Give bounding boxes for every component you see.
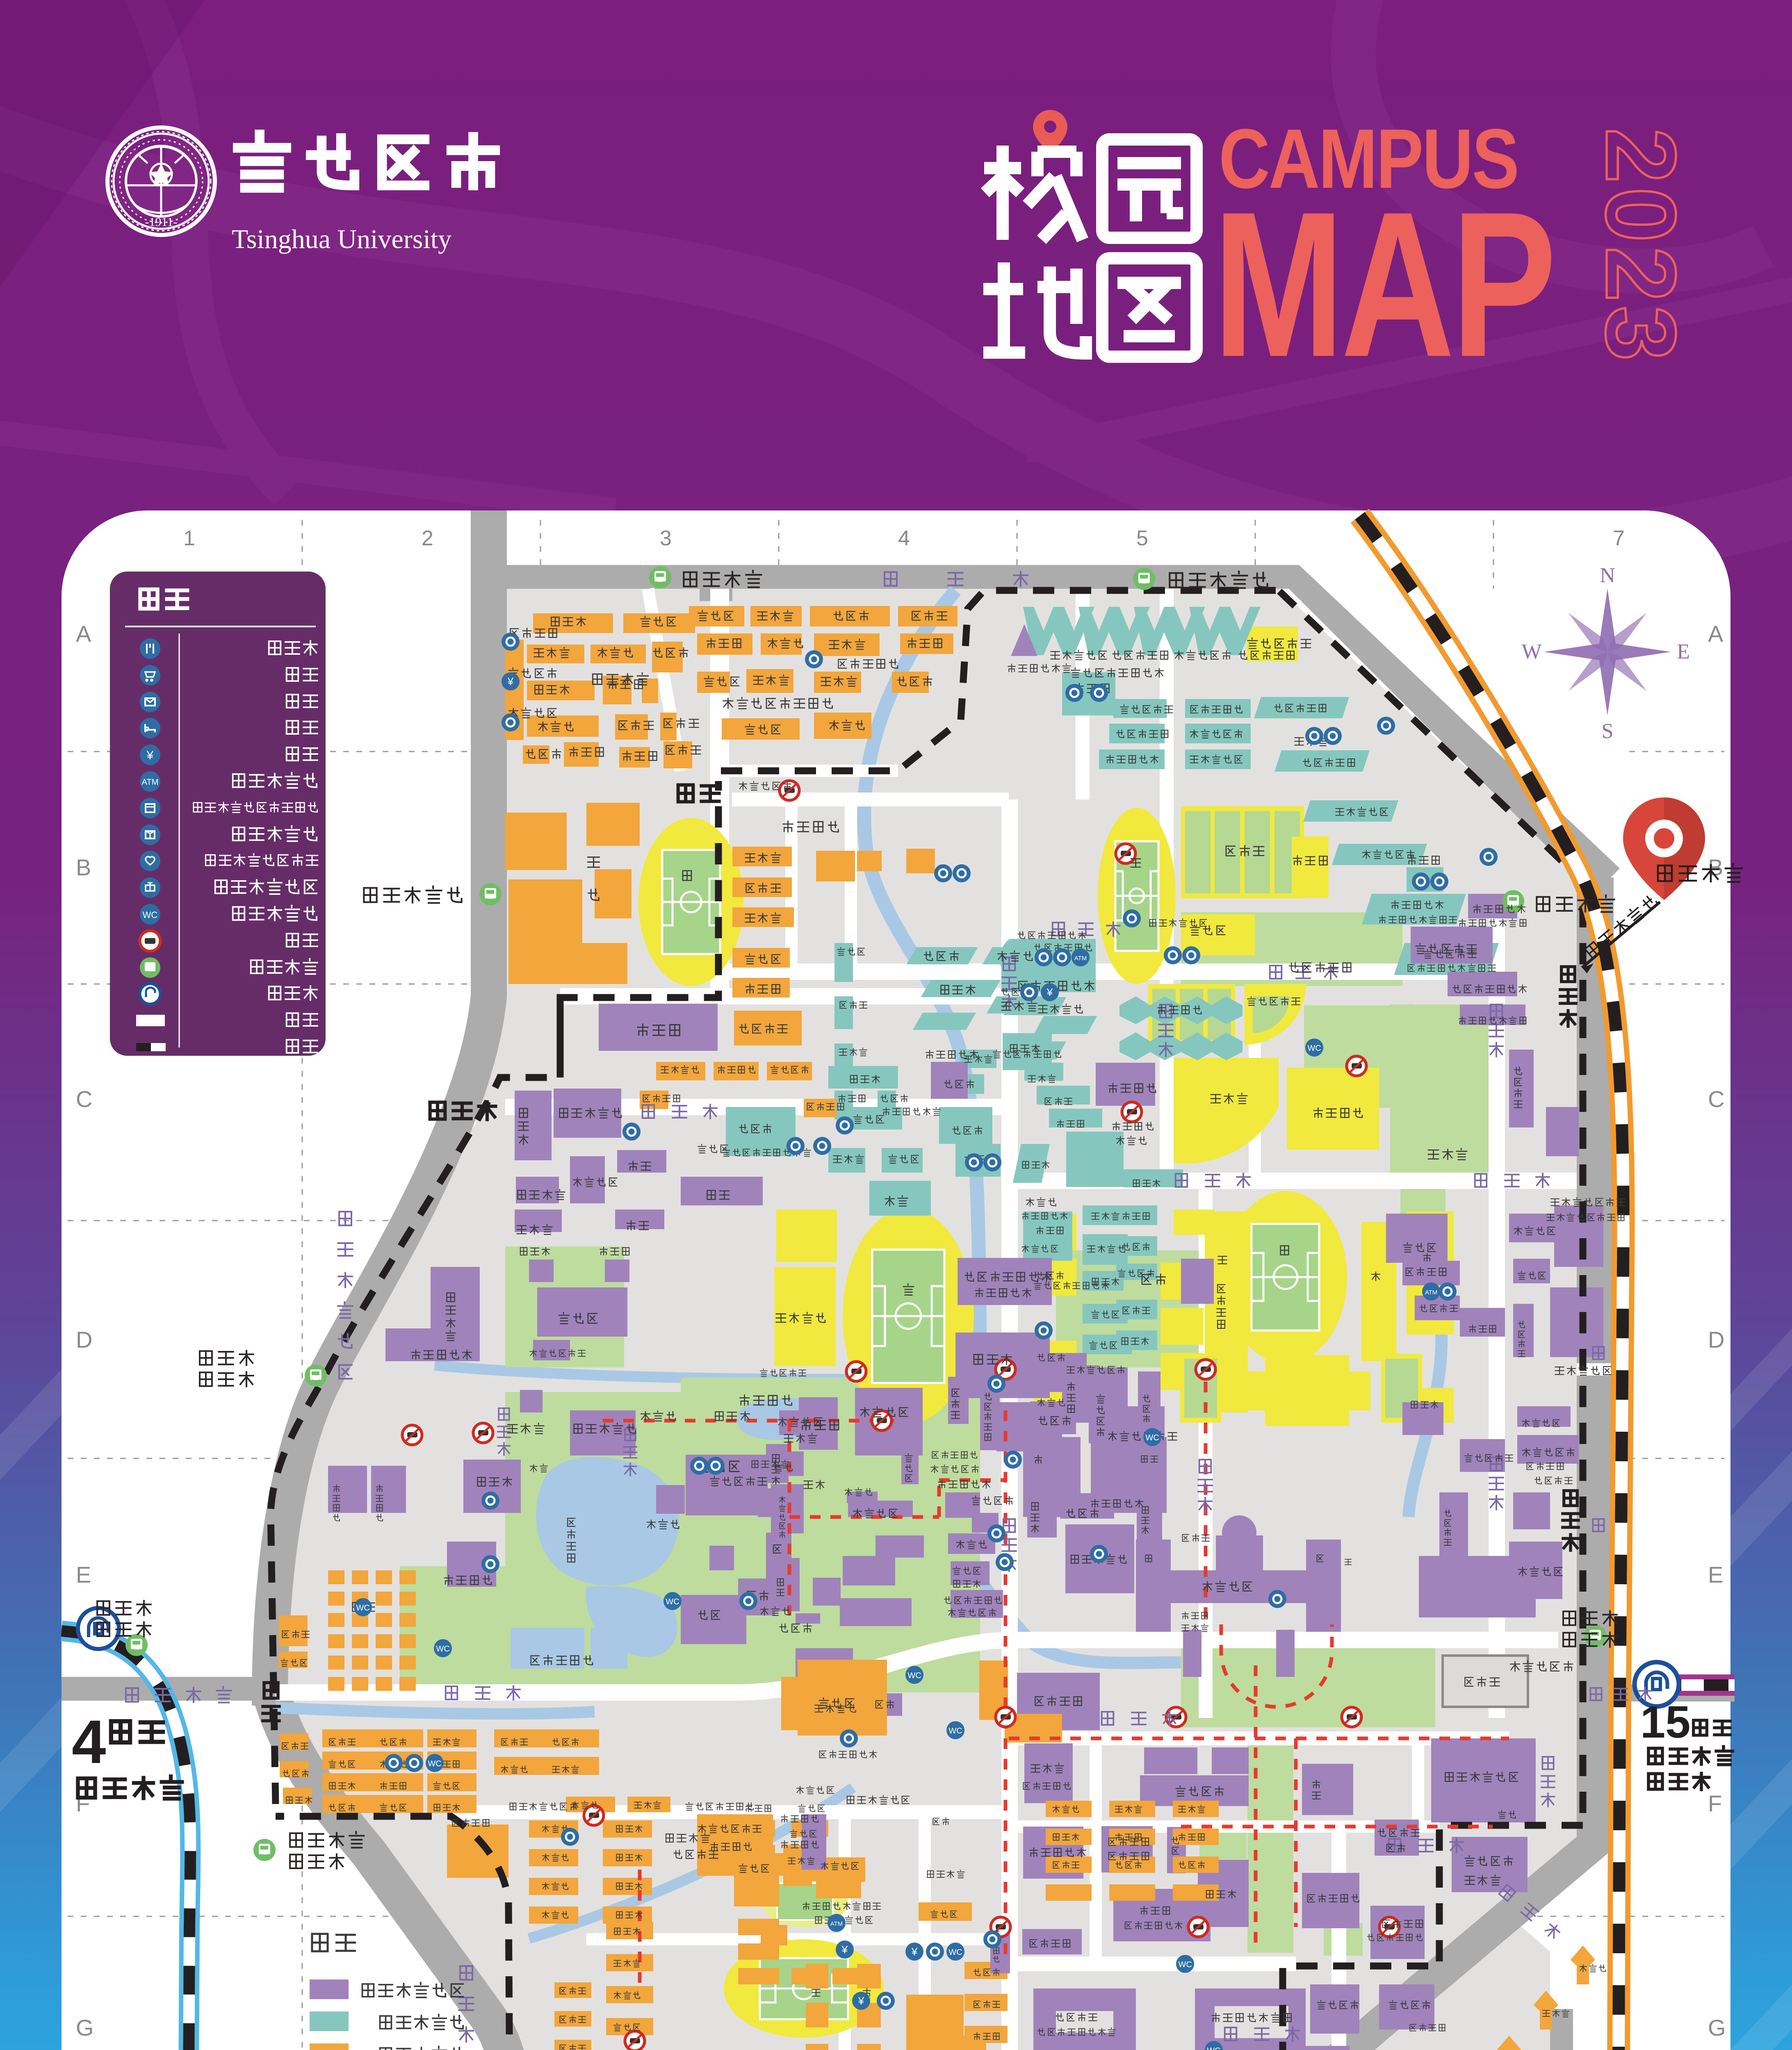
svg-text:ATM: ATM xyxy=(142,778,159,787)
svg-text:G: G xyxy=(76,2015,94,2041)
svg-text:N: N xyxy=(1600,564,1615,587)
svg-text:E: E xyxy=(1677,640,1690,663)
svg-text:WC: WC xyxy=(907,1671,921,1680)
svg-text:C: C xyxy=(76,1086,92,1112)
svg-text:1: 1 xyxy=(183,526,195,550)
svg-text:W: W xyxy=(1521,640,1541,663)
svg-text:¥: ¥ xyxy=(841,1943,848,1956)
svg-text:WC: WC xyxy=(428,1759,441,1768)
svg-text:B: B xyxy=(76,854,91,880)
svg-text:2: 2 xyxy=(422,526,433,550)
svg-text:WC: WC xyxy=(1145,1433,1159,1442)
svg-text:WC: WC xyxy=(666,1597,679,1606)
svg-text:¥: ¥ xyxy=(507,675,514,688)
svg-text:¥: ¥ xyxy=(858,1995,864,2007)
svg-text:¥: ¥ xyxy=(146,749,154,762)
svg-text:WC: WC xyxy=(436,1645,449,1654)
svg-text:¥: ¥ xyxy=(1046,986,1053,998)
svg-text:G: G xyxy=(1708,2015,1726,2041)
svg-text:D: D xyxy=(76,1327,92,1353)
svg-text:WC: WC xyxy=(948,1948,962,1957)
svg-text:F: F xyxy=(1708,1790,1722,1816)
svg-text:WC: WC xyxy=(1207,2046,1220,2050)
svg-text:3: 3 xyxy=(660,526,672,550)
svg-text:WC: WC xyxy=(143,910,158,920)
svg-text:D: D xyxy=(1708,1327,1724,1353)
svg-text:S: S xyxy=(1602,720,1614,743)
svg-text:2023: 2023 xyxy=(1585,128,1696,365)
svg-text:E: E xyxy=(76,1562,91,1588)
svg-text:A: A xyxy=(76,621,91,647)
svg-text:ATM: ATM xyxy=(830,1920,843,1927)
svg-text:-1911-: -1911- xyxy=(145,215,178,229)
svg-text:5: 5 xyxy=(1136,526,1148,550)
svg-text:4: 4 xyxy=(898,526,910,550)
svg-text:WC: WC xyxy=(1178,1960,1192,1969)
svg-text:15: 15 xyxy=(1640,1697,1690,1747)
svg-text:WC: WC xyxy=(356,1604,369,1613)
svg-text:C: C xyxy=(1708,1086,1724,1112)
svg-text:7: 7 xyxy=(1613,526,1625,550)
svg-text:MAP: MAP xyxy=(1213,169,1553,400)
svg-text:A: A xyxy=(1708,621,1724,647)
svg-text:Tsinghua University: Tsinghua University xyxy=(232,224,451,254)
svg-text:ATM: ATM xyxy=(1074,955,1087,962)
svg-text:E: E xyxy=(1708,1562,1723,1588)
svg-text:ATM: ATM xyxy=(1425,1289,1438,1296)
svg-text:WC: WC xyxy=(1307,1044,1321,1053)
svg-text:WC: WC xyxy=(948,1727,962,1736)
svg-text:¥: ¥ xyxy=(911,1945,918,1958)
svg-text:4: 4 xyxy=(72,1707,106,1776)
